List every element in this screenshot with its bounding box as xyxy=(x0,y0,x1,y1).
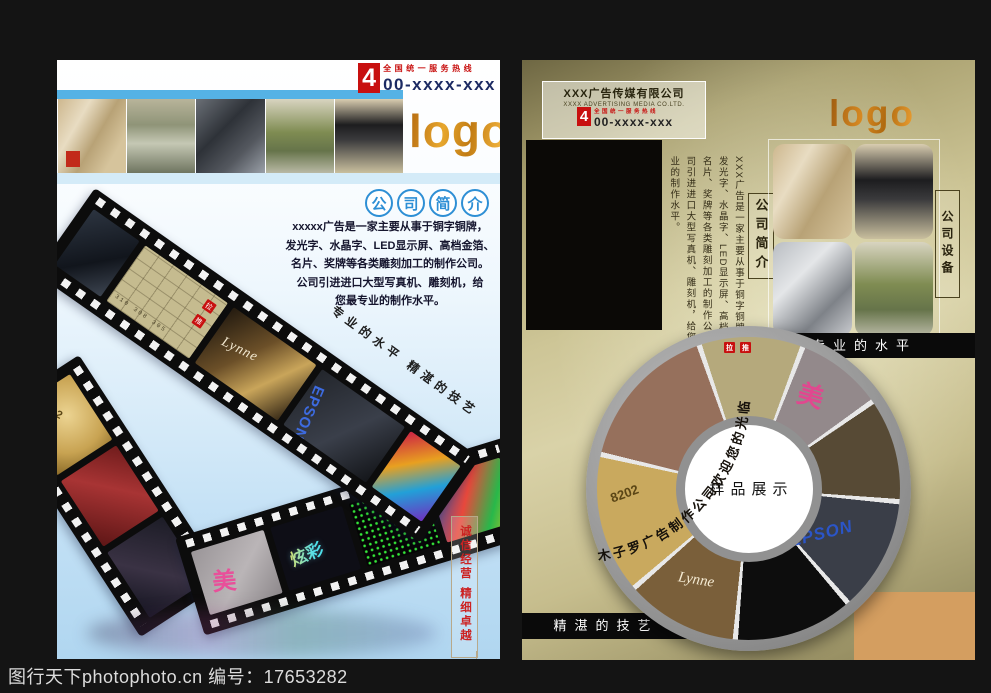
company-name-cn: XXX广告传媒有限公司 xyxy=(545,85,703,101)
flyer-front-page: 4 全国统一服务热线 00-xxxx-xxx logo 公 司 简 介 xxxx… xyxy=(57,60,500,659)
intro-line: xxxxx广告是一家主要从事于铜字铜牌， xyxy=(284,218,496,237)
bottom-blue-band xyxy=(57,173,500,184)
neon-text: 炫彩 xyxy=(285,535,326,571)
red-sign-detail xyxy=(66,151,80,167)
photo-worktable xyxy=(266,99,334,173)
company-logo: logo xyxy=(409,104,500,158)
company-intro-paragraph: xxxxx广告是一家主要从事于铜字铜牌， 发光字、水晶字、LED显示屏、高档金箔… xyxy=(284,218,496,311)
hotline-label: 全国统一服务热线 xyxy=(383,63,496,74)
top-blue-band xyxy=(57,90,403,99)
badge-char: 司 xyxy=(397,189,425,217)
wheel-center-hub: 样品展示 xyxy=(676,416,822,562)
photo-printer xyxy=(196,99,264,173)
pull-sign: 拉 xyxy=(724,342,735,353)
intro-line: 您最专业的制作水平。 xyxy=(284,292,496,311)
stock-site-watermark: 图行天下photophoto.cn 编号：17653282 xyxy=(8,663,348,689)
hotline-number: 00-xxxx-xxx xyxy=(594,115,673,129)
company-intro-badge: 公 司 简 介 xyxy=(365,189,489,217)
lynne-text: Lynne xyxy=(218,334,260,365)
badge-char: 介 xyxy=(461,189,489,217)
sample-display-wheel: 拉 推 美 EPSON Lynne 8202 样品展示 xyxy=(586,326,911,651)
orange-accent-square xyxy=(854,592,975,660)
hotline-number: 00-xxxx-xxx xyxy=(383,75,496,95)
motto-vertical-box: 诚信经营 精细卓越 xxx广告欢迎您的光临 xyxy=(451,516,478,658)
photo-printer xyxy=(773,242,852,337)
service-hotline: 4 全国统一服务热线 00-xxxx-xxx xyxy=(358,63,496,95)
motto-column: xxx广告欢迎您的光临 xyxy=(452,651,477,659)
filmstrip-reflection xyxy=(87,609,437,657)
intro-line: 公司引进进口大型写真机、雕刻机，给 xyxy=(284,274,496,293)
photo-plotter xyxy=(855,144,934,239)
push-sign: 推 xyxy=(740,342,751,353)
pink-character: 美 xyxy=(211,560,238,597)
photo-plotter xyxy=(335,99,403,173)
flyer-back-page: XXX广告传媒有限公司 XXXX ADVERTISING MEDIA CO.LT… xyxy=(522,60,975,660)
hotline-label: 全国统一服务热线 xyxy=(594,107,673,115)
badge-char: 公 xyxy=(365,189,393,217)
hotline-digit: 4 xyxy=(577,107,591,126)
company-logo: logo xyxy=(829,93,915,135)
photo-worktable xyxy=(855,242,934,337)
stock-image-canvas: 4 全国统一服务热线 00-xxxx-xxx logo 公 司 简 介 xxxx… xyxy=(0,0,991,693)
equipment-photo-strip xyxy=(58,99,403,173)
black-accent-panel xyxy=(526,140,662,330)
intro-line: 发光字、水晶字、LED显示屏、高档金箔、 xyxy=(284,237,496,256)
badge-char: 简 xyxy=(429,189,457,217)
photo-workshop xyxy=(58,99,126,173)
push-sign: 推 xyxy=(191,313,206,328)
photo-workshop xyxy=(773,144,852,239)
motto-column: 诚信经营 精细卓越 xyxy=(452,517,477,651)
hotline-digit: 4 xyxy=(358,63,380,93)
equipment-photo-collage xyxy=(773,144,933,336)
pull-sign: 拉 xyxy=(201,299,216,314)
sample-display-label: 样品展示 xyxy=(703,478,793,499)
wheel-door-plate-chips: 拉 推 xyxy=(724,342,751,353)
intro-line: 名片、奖牌等各类雕刻加工的制作公司。 xyxy=(284,255,496,274)
photo-engraver xyxy=(127,99,195,173)
equipment-section-title: 公司设备 xyxy=(935,190,960,298)
service-hotline: 4 全国统一服务热线 00-xxxx-xxx xyxy=(577,107,673,129)
disc-number: 8202 xyxy=(57,399,64,421)
